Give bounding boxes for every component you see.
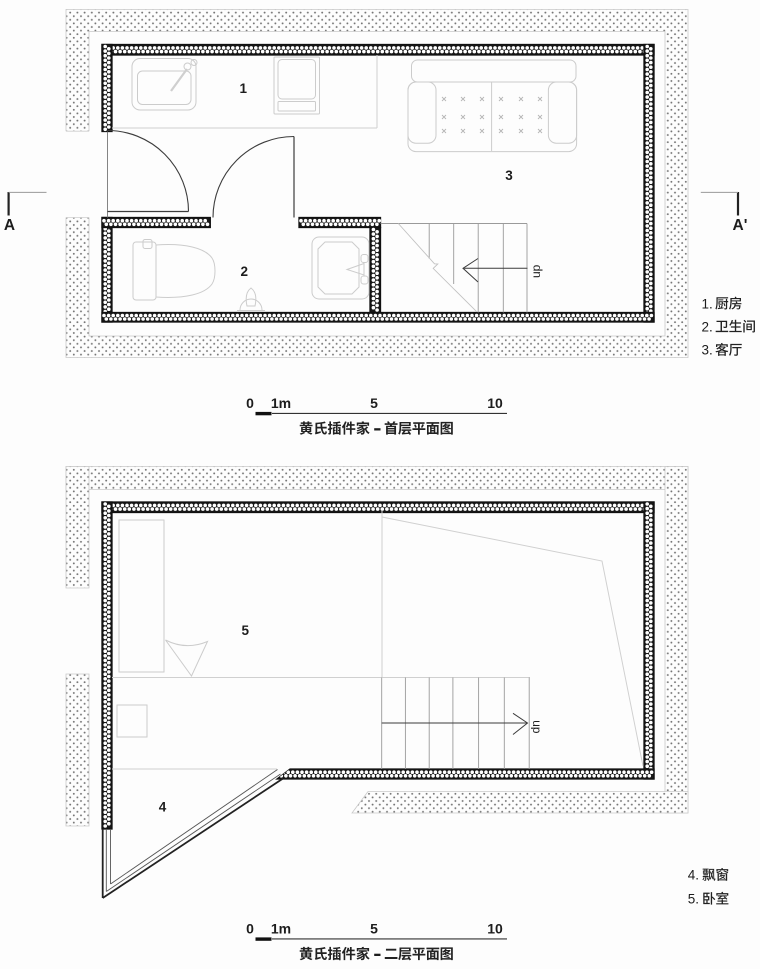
svg-text:5: 5 (370, 395, 378, 411)
svg-text:A: A (4, 217, 15, 234)
svg-text:3: 3 (505, 168, 513, 183)
svg-text:10: 10 (487, 395, 503, 411)
svg-text:1.: 1. (702, 296, 713, 311)
svg-text:2: 2 (240, 264, 248, 279)
svg-text:dn: dn (529, 720, 543, 733)
svg-text:1m: 1m (271, 921, 291, 937)
svg-text:A': A' (733, 217, 748, 234)
svg-text:3.: 3. (702, 343, 713, 358)
svg-text:4.: 4. (688, 868, 699, 883)
svg-text:5: 5 (370, 921, 378, 937)
svg-text:5: 5 (242, 623, 250, 638)
svg-text:10: 10 (487, 921, 503, 937)
svg-text:2.: 2. (702, 319, 713, 334)
svg-text:up: up (529, 264, 543, 278)
svg-text:5.: 5. (688, 892, 699, 907)
svg-text:0: 0 (246, 395, 254, 411)
svg-text:4: 4 (159, 800, 167, 815)
svg-text:0: 0 (246, 921, 254, 937)
svg-text:1: 1 (239, 81, 247, 96)
svg-text:1m: 1m (271, 395, 291, 411)
